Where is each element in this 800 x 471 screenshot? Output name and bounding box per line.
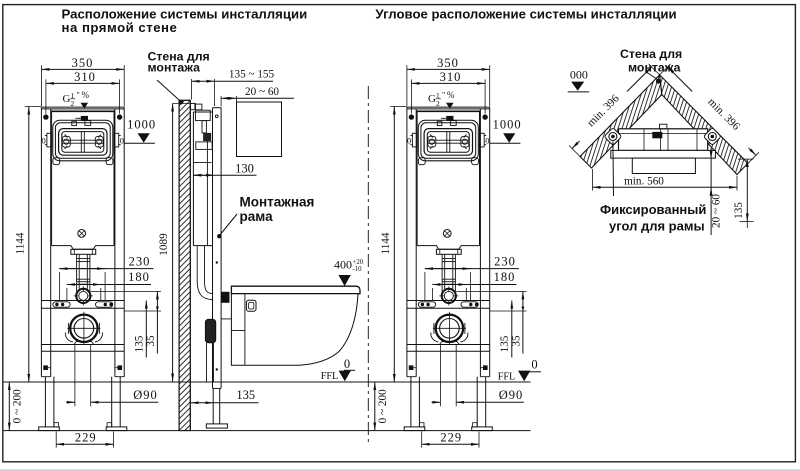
- svg-text:20 ~ 60: 20 ~ 60: [245, 86, 279, 98]
- svg-text:рама: рама: [240, 209, 274, 224]
- svg-text:Монтажная: Монтажная: [240, 195, 315, 210]
- svg-text:монтажа: монтажа: [148, 61, 201, 75]
- svg-text:0: 0: [344, 357, 350, 371]
- svg-text:130: 130: [235, 161, 254, 175]
- svg-text:Стена для: Стена для: [620, 47, 682, 61]
- svg-text:на прямой стене: на прямой стене: [62, 20, 178, 35]
- svg-text:000: 000: [570, 68, 588, 82]
- svg-text:1089: 1089: [158, 233, 170, 256]
- svg-text:135: 135: [733, 202, 745, 219]
- svg-text:20 ~ 60: 20 ~ 60: [711, 194, 723, 228]
- svg-text:-10: -10: [353, 266, 363, 273]
- svg-text:400: 400: [334, 257, 352, 271]
- svg-text:0: 0: [531, 358, 537, 372]
- svg-text:135: 135: [236, 388, 255, 402]
- svg-text:min. 560: min. 560: [624, 175, 664, 187]
- svg-text:+20: +20: [353, 259, 364, 266]
- svg-text:Угловое расположение системы и: Угловое расположение системы инсталляции: [375, 6, 676, 21]
- svg-text:FFL: FFL: [498, 372, 516, 383]
- svg-text:угол для рамы: угол для рамы: [609, 219, 705, 234]
- svg-text:Фиксированный: Фиксированный: [600, 202, 706, 217]
- svg-text:FFL: FFL: [321, 371, 339, 382]
- svg-text:135 ~ 155: 135 ~ 155: [229, 69, 275, 81]
